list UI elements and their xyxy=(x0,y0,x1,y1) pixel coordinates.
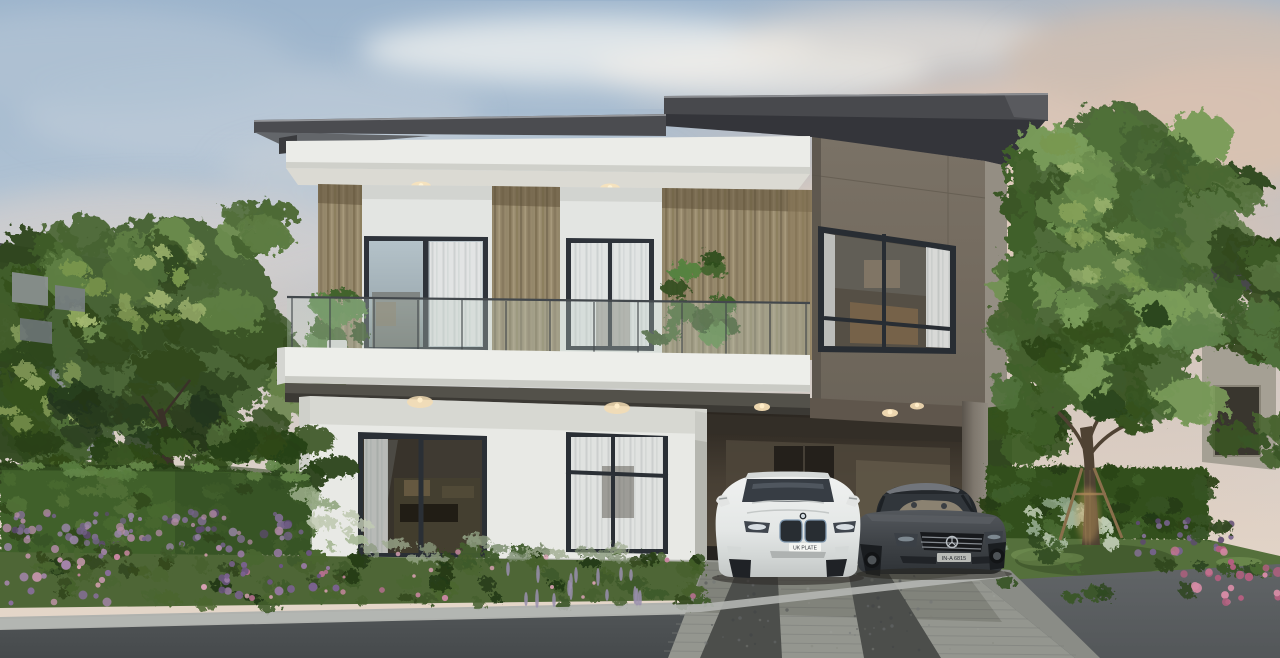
svg-text:UK PLATE: UK PLATE xyxy=(793,546,817,552)
svg-text:IN-A 6815: IN-A 6815 xyxy=(942,556,966,562)
